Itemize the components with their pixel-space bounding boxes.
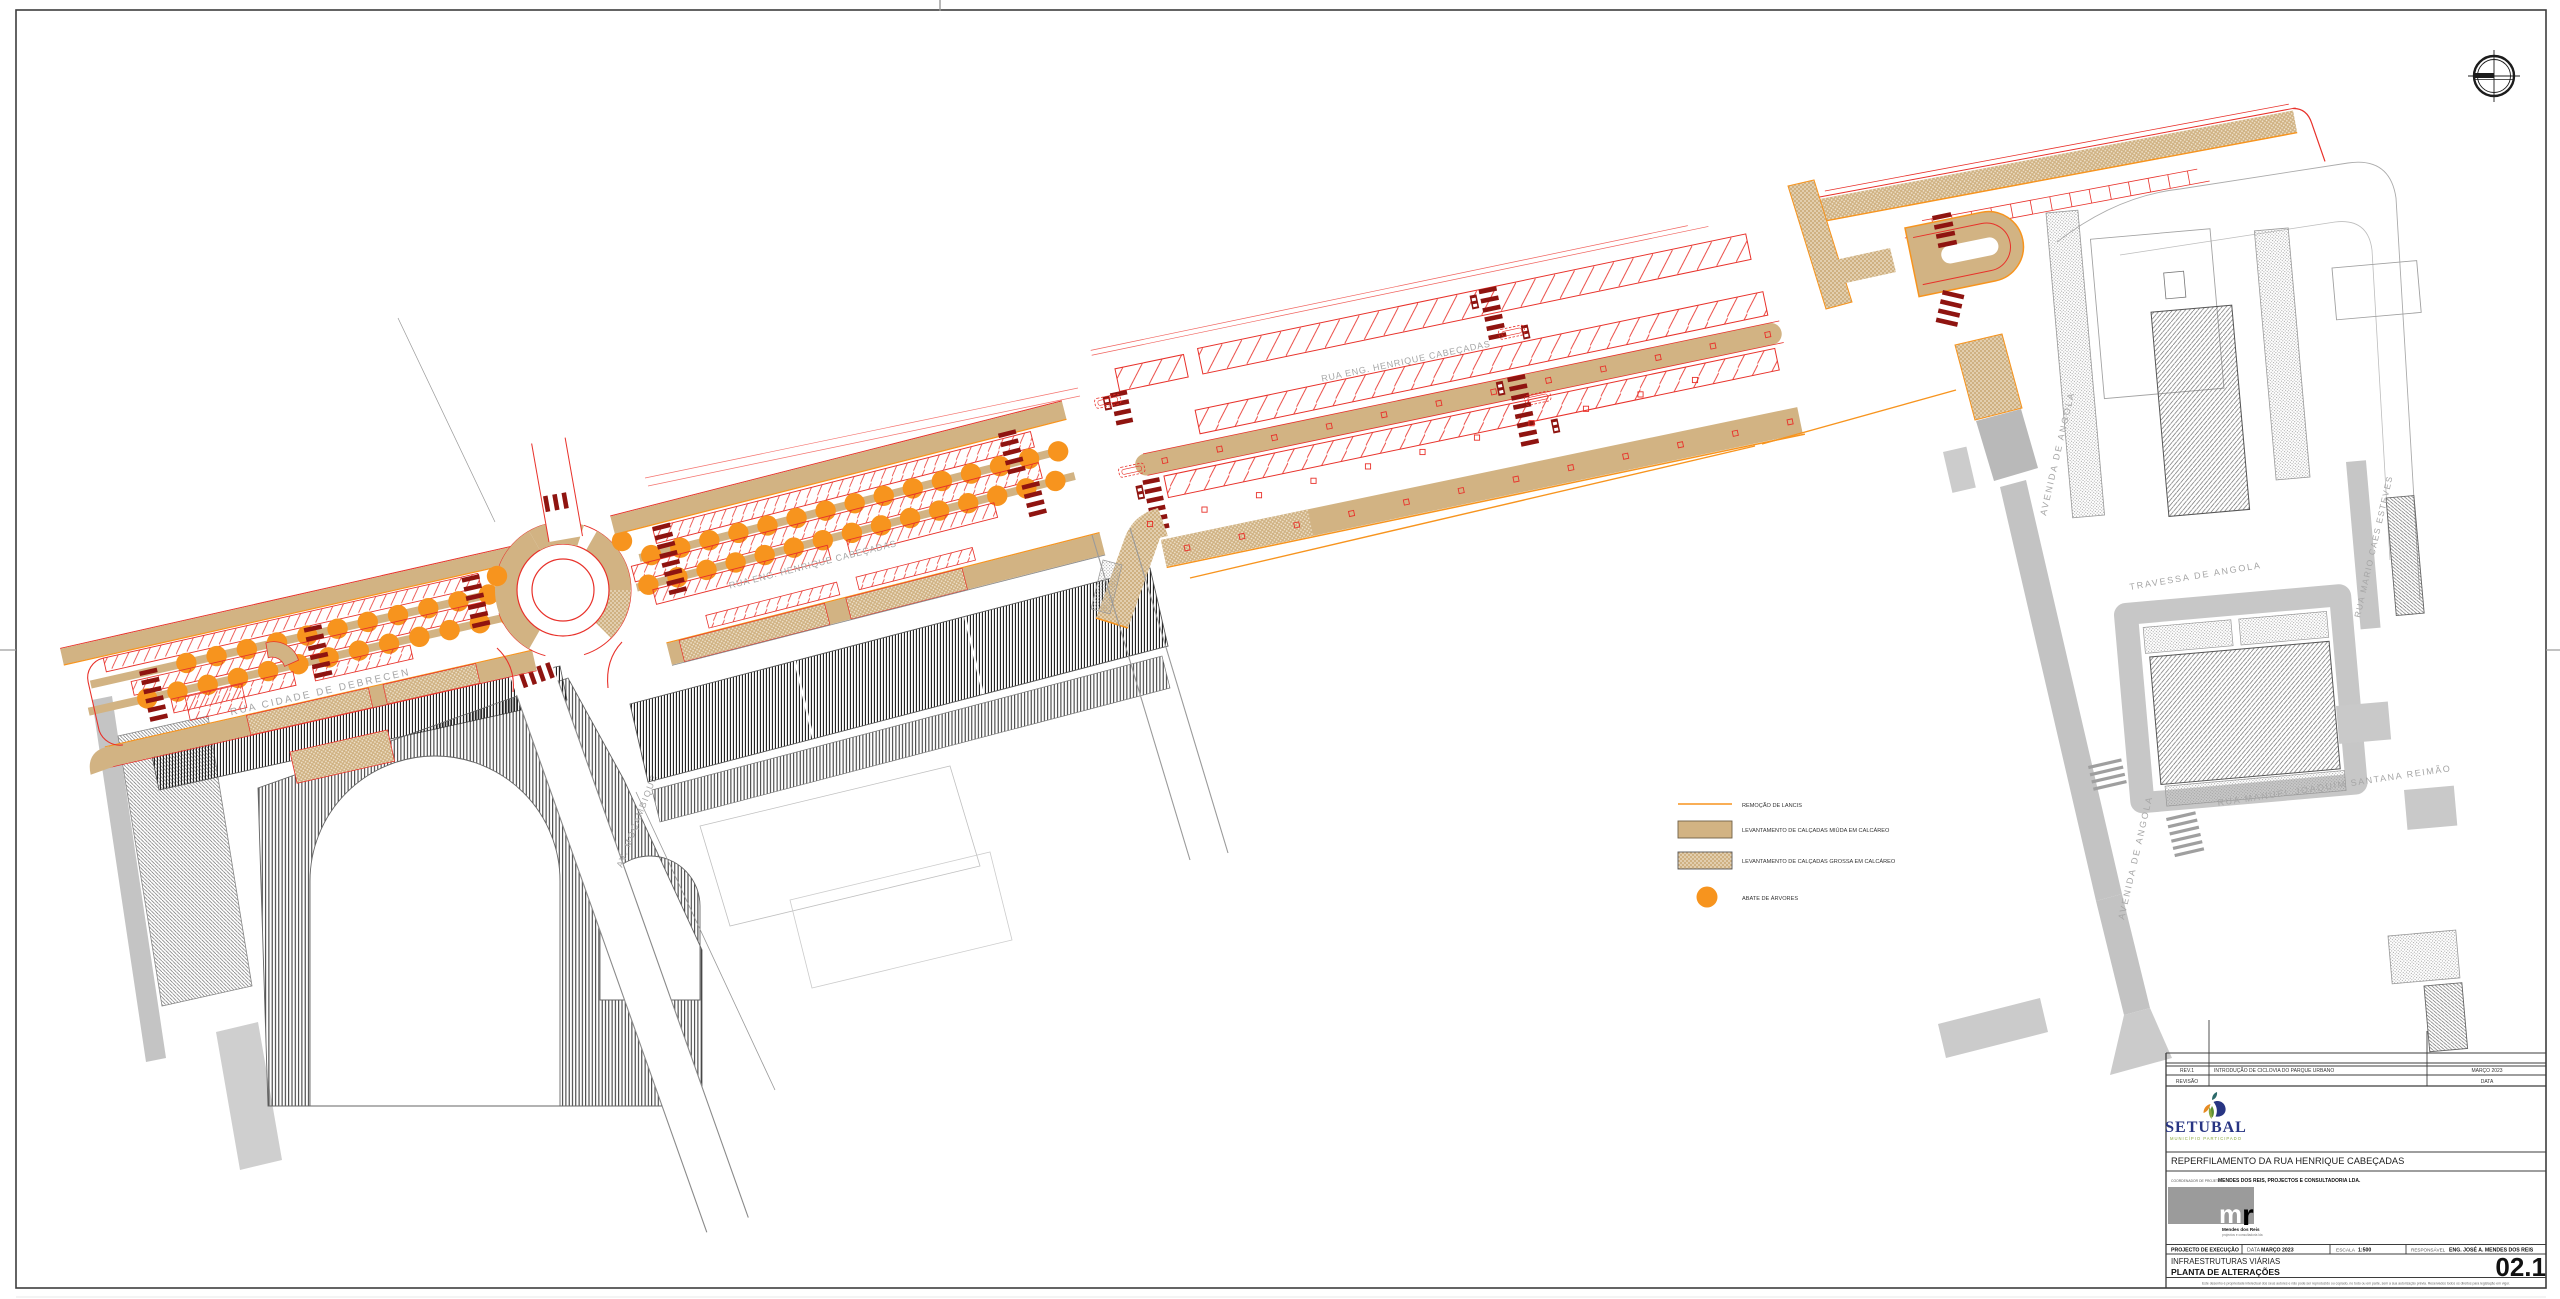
svg-text:m: m: [2219, 1199, 2241, 1229]
svg-text:Este desenho é propriedade int: Este desenho é propriedade intelectual d…: [2202, 1282, 2510, 1286]
svg-text:LEVANTAMENTO DE CALÇADAS MIÚDA: LEVANTAMENTO DE CALÇADAS MIÚDA EM CALCÁR…: [1742, 827, 1890, 834]
svg-text:DATA: DATA: [2481, 1079, 2494, 1085]
svg-text:MARÇO 2023: MARÇO 2023: [2261, 1248, 2294, 1254]
svg-text:MUNICÍPIO PARTICIPADO: MUNICÍPIO PARTICIPADO: [2170, 1136, 2242, 1141]
svg-text:MARÇO 2023: MARÇO 2023: [2471, 1068, 2502, 1074]
svg-text:02.1: 02.1: [2495, 1252, 2546, 1282]
svg-text:ABATE DE ÁRVORES: ABATE DE ÁRVORES: [1742, 895, 1798, 902]
svg-text:REVISÃO: REVISÃO: [2176, 1078, 2198, 1085]
svg-text:Mendes dos Reis: Mendes dos Reis: [2222, 1227, 2260, 1232]
svg-text:ESCALA: ESCALA: [2336, 1248, 2356, 1254]
svg-text:REMOÇÃO DE LANCIS: REMOÇÃO DE LANCIS: [1742, 802, 1802, 809]
svg-text:DATA: DATA: [2247, 1248, 2261, 1254]
svg-text:INTRODUÇÃO DE CICLOVIA DO PARQ: INTRODUÇÃO DE CICLOVIA DO PARQUE URBANO: [2214, 1067, 2334, 1074]
svg-text:REPERFILAMENTO DA RUA HENRIQUE: REPERFILAMENTO DA RUA HENRIQUE CABEÇADAS: [2171, 1156, 2404, 1166]
svg-text:RESPONSÁVEL: RESPONSÁVEL: [2411, 1247, 2446, 1253]
svg-text:projectos e consultadoria lda: projectos e consultadoria lda: [2222, 1233, 2263, 1237]
svg-text:COORDENADOR DE PROJETO: COORDENADOR DE PROJETO: [2171, 1179, 2221, 1183]
svg-text:MENDES DOS REIS, PROJECTOS E C: MENDES DOS REIS, PROJECTOS E CONSULTADOR…: [2218, 1178, 2361, 1184]
svg-text:REV.1: REV.1: [2180, 1068, 2194, 1074]
svg-text:1:500: 1:500: [2358, 1248, 2371, 1254]
svg-text:PLANTA DE ALTERAÇÕES: PLANTA DE ALTERAÇÕES: [2171, 1267, 2280, 1277]
svg-text:INFRAESTRUTURAS VIÁRIAS: INFRAESTRUTURAS VIÁRIAS: [2171, 1257, 2280, 1266]
svg-text:LEVANTAMENTO DE CALÇADAS GROSS: LEVANTAMENTO DE CALÇADAS GROSSA EM CALCÁ…: [1742, 858, 1896, 865]
svg-text:PROJECTO DE EXECUÇÃO: PROJECTO DE EXECUÇÃO: [2171, 1247, 2239, 1254]
svg-text:SETUBAL: SETUBAL: [2165, 1119, 2247, 1136]
